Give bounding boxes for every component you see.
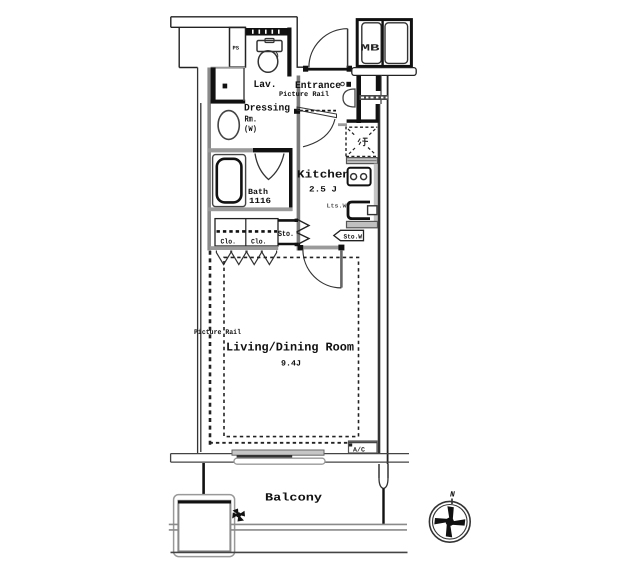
svg-text:Clo.: Clo.	[221, 238, 237, 247]
svg-text:Dressing: Dressing	[244, 103, 290, 115]
svg-text:9.4J: 9.4J	[281, 359, 301, 368]
svg-text:Balcony: Balcony	[265, 493, 322, 505]
svg-text:Living/Dining Room: Living/Dining Room	[226, 341, 354, 355]
svg-text:Rm.: Rm.	[245, 115, 258, 125]
svg-text:1116: 1116	[249, 197, 271, 206]
svg-text:Lts.W: Lts.W	[327, 203, 347, 210]
svg-text:Bath: Bath	[248, 188, 268, 197]
svg-text:Clo.: Clo.	[251, 238, 267, 247]
svg-text:A/C: A/C	[353, 447, 365, 454]
svg-text:(W): (W)	[244, 125, 257, 134]
svg-text:N: N	[450, 491, 455, 500]
svg-text:Sto.W: Sto.W	[344, 233, 363, 240]
svg-text:Sto.: Sto.	[278, 230, 294, 239]
svg-text:PS: PS	[233, 45, 240, 52]
svg-text:Picture Rail: Picture Rail	[279, 90, 329, 99]
svg-text:Lav.: Lav.	[254, 80, 277, 91]
svg-text:Kitchen: Kitchen	[297, 169, 350, 181]
svg-text:Picture Rail: Picture Rail	[194, 328, 241, 337]
svg-text:2.5 J: 2.5 J	[309, 185, 337, 194]
svg-text:MB: MB	[361, 43, 380, 54]
